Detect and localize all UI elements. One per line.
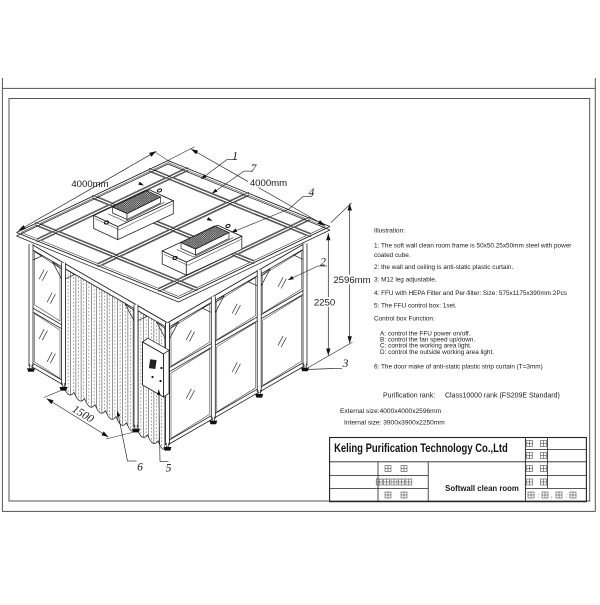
svg-text:5: The FFU control box: 1set.: 5: The FFU control box: 1set. (374, 303, 457, 310)
svg-text:4: 4 (309, 187, 315, 199)
svg-text:2250: 2250 (314, 298, 335, 309)
svg-text:Class10000 rank (FS209E Standa: Class10000 rank (FS209E Standard) (445, 393, 560, 400)
svg-text:6: The door make of anti-stati: 6: The door make of anti-static plastic … (374, 363, 543, 370)
svg-text:Softwall clean room: Softwall clean room (445, 484, 519, 493)
svg-text:2: the wall and ceiling is an: 2: the wall and ceiling is anti-static p… (374, 264, 513, 271)
svg-text:Keling Purification Technology: Keling Purification Technology Co.,Ltd (334, 442, 508, 455)
svg-text:Control box Function:: Control box Function: (374, 316, 435, 323)
svg-text:3: M12 leg adjustable.: 3: M12 leg adjustable. (374, 277, 437, 284)
svg-text:3: 3 (342, 358, 349, 370)
svg-text:D: control the outside working: D: control the outside working area ligh… (380, 349, 494, 356)
svg-text:Illustration:: Illustration: (374, 228, 405, 235)
svg-text:4: FFU with HEPA Filter and Pe: 4: FFU with HEPA Filter and Per-filter: … (374, 290, 567, 297)
svg-text:External size:4000x4000x2596mm: External size:4000x4000x2596mm (340, 408, 442, 415)
svg-text:5: 5 (166, 463, 172, 475)
svg-text:6: 6 (137, 462, 143, 474)
svg-text:1: 1 (232, 151, 238, 163)
svg-text:Purification rank:: Purification rank: (383, 393, 435, 400)
svg-text:Internal size: 3900x3900x2250: Internal size: 3900x3900x2250mm (344, 420, 445, 427)
svg-text:4000mm: 4000mm (71, 179, 108, 190)
svg-text:coated cube.: coated cube. (374, 252, 411, 259)
svg-text:4000mm: 4000mm (250, 178, 287, 189)
svg-text:2: 2 (320, 257, 326, 269)
svg-text:2596mm: 2596mm (333, 275, 370, 286)
svg-text:1: The soft wall clean room fr: 1: The soft wall clean room frame is 50x… (374, 243, 572, 250)
